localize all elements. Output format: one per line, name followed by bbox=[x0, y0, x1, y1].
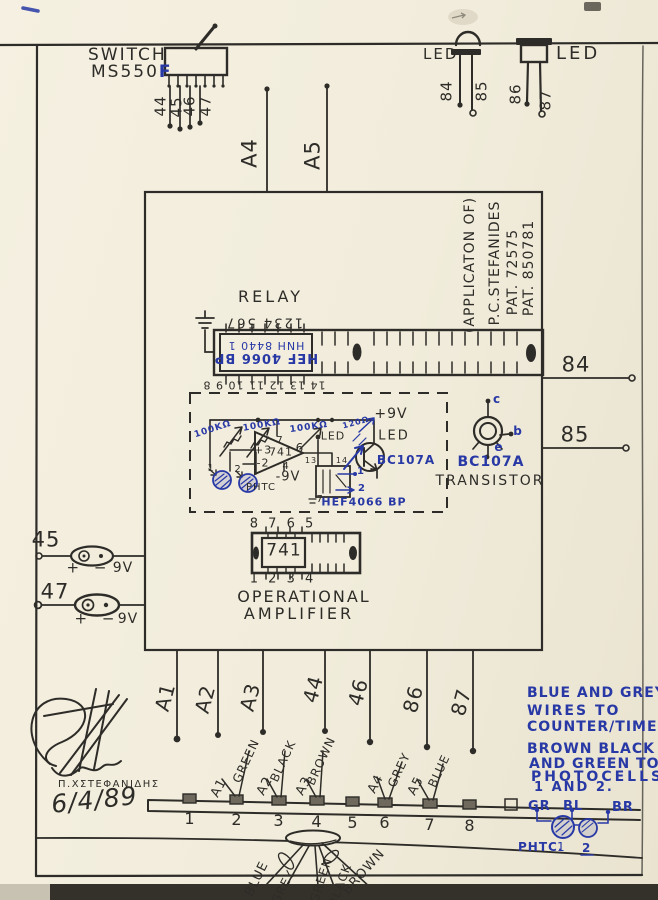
terminal-number-4: 4 bbox=[311, 814, 322, 830]
relay-chip-line1: HEF 4066 BP bbox=[214, 351, 318, 364]
transistor-pinout bbox=[473, 399, 513, 460]
quad-switch-pin14: 14 bbox=[336, 457, 348, 465]
note-line1: BLUE AND GREY bbox=[527, 686, 658, 700]
bottom-wire-a1: A1 bbox=[152, 681, 179, 714]
note-line7: 1 AND 2. bbox=[534, 781, 614, 794]
wire-85-label: 85 bbox=[561, 425, 590, 446]
led-left-pin-84: 84 bbox=[440, 80, 455, 101]
quad-switch-pin13: 13 bbox=[305, 457, 317, 465]
bottom-wire-46: 46 bbox=[345, 676, 371, 708]
pinout-caption: TRANSISTOR bbox=[436, 474, 545, 488]
circuit-led-left-label: LED bbox=[321, 431, 346, 442]
opamp-pin6: 6 bbox=[296, 442, 305, 454]
led-left-pin-85: 85 bbox=[475, 80, 490, 101]
note-photocell1-number: 1 bbox=[557, 841, 566, 853]
note-br-label: BR bbox=[612, 801, 634, 814]
photocell2-number: 2 bbox=[234, 465, 241, 475]
note-line2: WIRES TO bbox=[527, 704, 620, 718]
note-photocell2-number: 2 bbox=[582, 842, 591, 854]
led-left-label: LED bbox=[423, 47, 458, 62]
led-right-pin-87: 87 bbox=[539, 89, 554, 110]
battery2-voltage: 9V bbox=[118, 612, 138, 626]
pinout-b-label: b bbox=[513, 425, 523, 437]
wire-a4-label: A4 bbox=[240, 138, 261, 168]
battery1-wire-label: 45 bbox=[32, 530, 61, 551]
note-bl-label: BL bbox=[563, 800, 583, 813]
patent-note-line3: PAT. 72575 bbox=[506, 229, 520, 315]
bottom-wire-44: 44 bbox=[300, 673, 326, 705]
note-line4: BROWN BLACK bbox=[527, 742, 655, 756]
circuit-led-right-label: LED bbox=[378, 430, 409, 443]
bottom-wire-87: 87 bbox=[448, 686, 474, 718]
opamp-741-label: 741 bbox=[269, 447, 293, 458]
vminus-label: -9V bbox=[276, 471, 301, 484]
opamp-pin-minus: -2 bbox=[257, 458, 270, 469]
wire-84-label: 84 bbox=[562, 355, 591, 376]
relay-pins-bottom: 14 13 12 11 10 9 8 bbox=[203, 380, 326, 391]
relay-chip-line2: HNH 8440 1 bbox=[214, 340, 318, 351]
switch-model: MS550F bbox=[91, 64, 173, 81]
pinout-c-label: c bbox=[493, 393, 501, 405]
terminal-number-3: 3 bbox=[273, 813, 284, 829]
patent-note-line1: (APPLICATON OF) bbox=[463, 197, 477, 333]
note-line3: COUNTER/TIMER. bbox=[527, 720, 658, 734]
switch-pin-44: 44 bbox=[154, 95, 169, 116]
switch-pin-46: 46 bbox=[183, 95, 198, 116]
wire-a5-label: A5 bbox=[303, 140, 324, 170]
note-gr-label: GR bbox=[528, 800, 551, 813]
quad-switch-pin7: 7 bbox=[316, 495, 323, 505]
dip-caption-line2: AMPLIFIER bbox=[244, 606, 354, 622]
pinout-part-label: BC107A bbox=[457, 455, 524, 469]
relay-chip-marking: HEF 4066 BP HNH 8440 1 bbox=[214, 340, 318, 364]
circuit-out1: 1 bbox=[357, 467, 365, 477]
dip-chip-label: 741 bbox=[266, 543, 301, 560]
circuit-transistor-label: BC107A bbox=[377, 454, 435, 466]
led-right-pin-86: 86 bbox=[509, 83, 524, 104]
terminal-number-6: 6 bbox=[379, 815, 390, 831]
patent-note-line2: P.C.STEFANIDES bbox=[488, 201, 502, 326]
bottom-wire-a3: A3 bbox=[237, 681, 264, 714]
dip-caption-line1: OPERATIONAL bbox=[237, 589, 370, 605]
terminal-number-2: 2 bbox=[231, 812, 242, 828]
scanned-schematic-page: SWITCH MS550F 44 45 46 47 LED 84 85 LED … bbox=[0, 0, 658, 900]
battery2-wire-label: 47 bbox=[41, 582, 70, 603]
pinout-e-label: e bbox=[494, 441, 503, 453]
switch-model-number: MS550 bbox=[91, 62, 159, 82]
opamp-pin7: 7 bbox=[276, 436, 283, 446]
scan-smudges bbox=[23, 2, 601, 25]
quad-switch-label: HEF4066 BP bbox=[321, 497, 406, 508]
vplus-label: +9V bbox=[374, 407, 407, 421]
photocell1-number: 1 bbox=[207, 464, 214, 474]
bottom-wire-86: 86 bbox=[400, 683, 426, 715]
wires-a4-a5 bbox=[264, 83, 329, 192]
switch-model-suffix: F bbox=[159, 62, 173, 82]
dip-pins-top: 8 7 6 5 bbox=[250, 518, 316, 531]
battery2-polarity: + − bbox=[75, 612, 120, 627]
relay-title: RELAY bbox=[238, 289, 303, 305]
signature-scribble bbox=[31, 689, 127, 776]
led-right-label: LED bbox=[556, 45, 600, 63]
battery1-voltage: 9V bbox=[113, 561, 133, 575]
terminal-number-5: 5 bbox=[347, 815, 358, 831]
patent-note-line4: PAT. 850781 bbox=[522, 220, 536, 316]
terminal-number-8: 8 bbox=[464, 818, 475, 834]
phtc-label: PHTC bbox=[246, 483, 276, 493]
dip-pins-bottom: 1 2 3 4 bbox=[250, 573, 316, 586]
battery1-polarity: + − bbox=[67, 561, 112, 576]
bottom-wire-a2: A2 bbox=[192, 683, 219, 716]
terminal-number-7: 7 bbox=[424, 817, 435, 833]
circuit-out2: 2 bbox=[358, 484, 366, 494]
relay-pins-top: 1234 567 bbox=[225, 316, 303, 329]
switch-pin-47: 47 bbox=[199, 95, 214, 116]
terminal-number-1: 1 bbox=[184, 811, 195, 827]
opamp-pin-plus: +3 bbox=[254, 445, 272, 456]
